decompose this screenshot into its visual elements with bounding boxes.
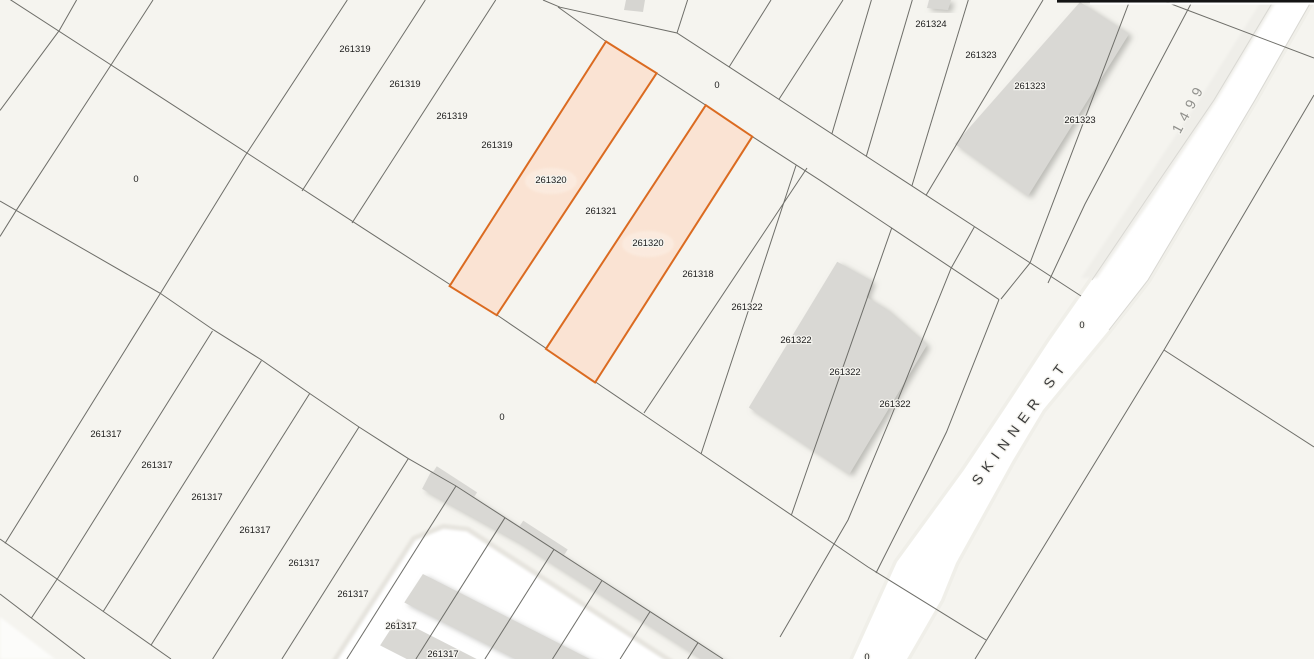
svg-text:261317: 261317 (288, 557, 319, 568)
svg-text:0: 0 (714, 79, 719, 90)
svg-text:261324: 261324 (915, 18, 946, 29)
svg-text:261318: 261318 (682, 268, 713, 279)
svg-text:261317: 261317 (141, 459, 172, 470)
svg-text:261322: 261322 (879, 398, 910, 409)
svg-text:261323: 261323 (965, 49, 996, 60)
svg-text:261317: 261317 (385, 620, 416, 631)
svg-text:261319: 261319 (339, 43, 370, 54)
svg-text:0: 0 (133, 173, 138, 184)
svg-text:261317: 261317 (90, 428, 121, 439)
svg-text:261317: 261317 (191, 491, 222, 502)
svg-text:261320: 261320 (535, 174, 566, 185)
svg-text:0: 0 (864, 651, 869, 659)
svg-text:261322: 261322 (731, 301, 762, 312)
svg-text:261317: 261317 (337, 588, 368, 599)
svg-text:261323: 261323 (1014, 80, 1045, 91)
svg-text:261322: 261322 (780, 334, 811, 345)
svg-text:261317: 261317 (239, 524, 270, 535)
svg-text:0: 0 (1079, 319, 1084, 330)
svg-text:261323: 261323 (1064, 114, 1095, 125)
svg-text:0: 0 (499, 411, 504, 422)
svg-text:261322: 261322 (829, 366, 860, 377)
svg-text:261319: 261319 (436, 110, 467, 121)
svg-text:261320: 261320 (632, 237, 663, 248)
svg-text:261321: 261321 (585, 205, 616, 216)
svg-text:261319: 261319 (481, 139, 512, 150)
svg-text:261317: 261317 (427, 648, 458, 659)
svg-text:261319: 261319 (389, 78, 420, 89)
